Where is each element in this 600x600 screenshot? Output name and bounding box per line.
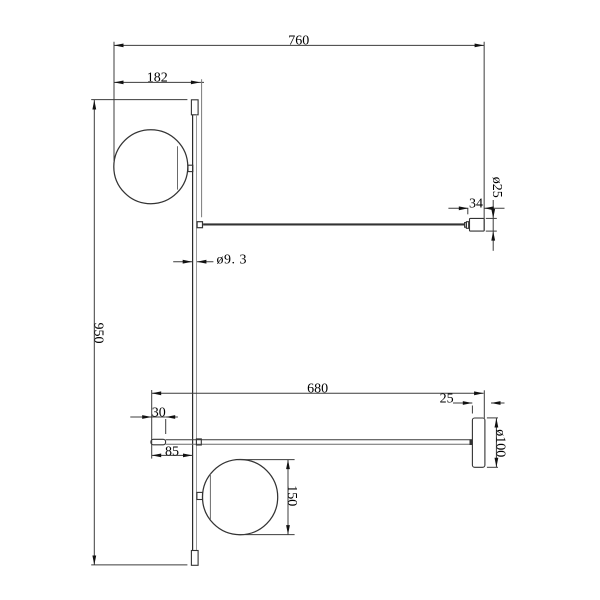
svg-text:680: 680: [307, 382, 328, 397]
svg-text:ø100: ø100: [492, 429, 507, 457]
svg-text:30: 30: [152, 405, 166, 420]
svg-text:85: 85: [165, 445, 179, 460]
svg-text:150: 150: [284, 485, 299, 506]
svg-text:950: 950: [91, 323, 106, 344]
svg-text:34: 34: [469, 196, 483, 211]
svg-text:25: 25: [440, 392, 454, 407]
svg-text:ø25: ø25: [489, 177, 504, 198]
svg-text:ø9. 3: ø9. 3: [217, 252, 248, 267]
svg-text:182: 182: [147, 70, 168, 85]
svg-text:760: 760: [288, 34, 309, 49]
